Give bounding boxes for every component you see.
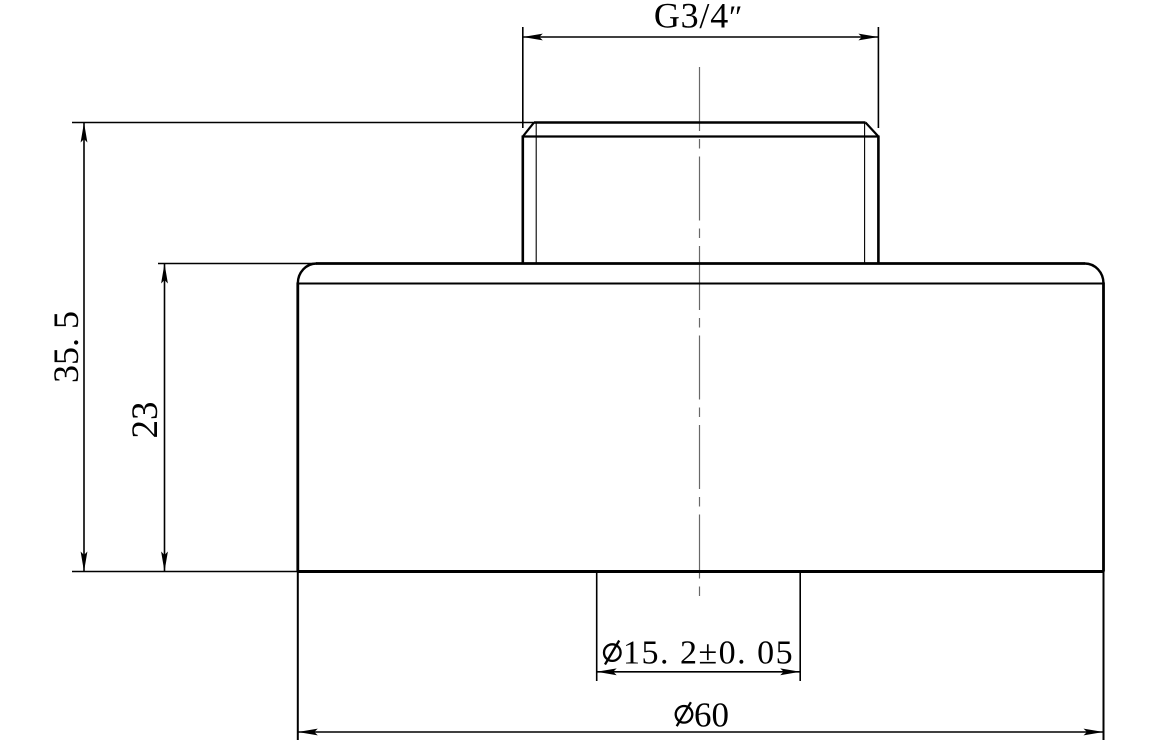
svg-text:35. 5: 35. 5 [46,311,86,383]
svg-text:G3/4″: G3/4″ [654,0,743,36]
svg-text:23: 23 [125,402,166,439]
svg-text:15. 2±0. 05: 15. 2±0. 05 [623,635,794,672]
svg-text:60: 60 [694,696,729,735]
